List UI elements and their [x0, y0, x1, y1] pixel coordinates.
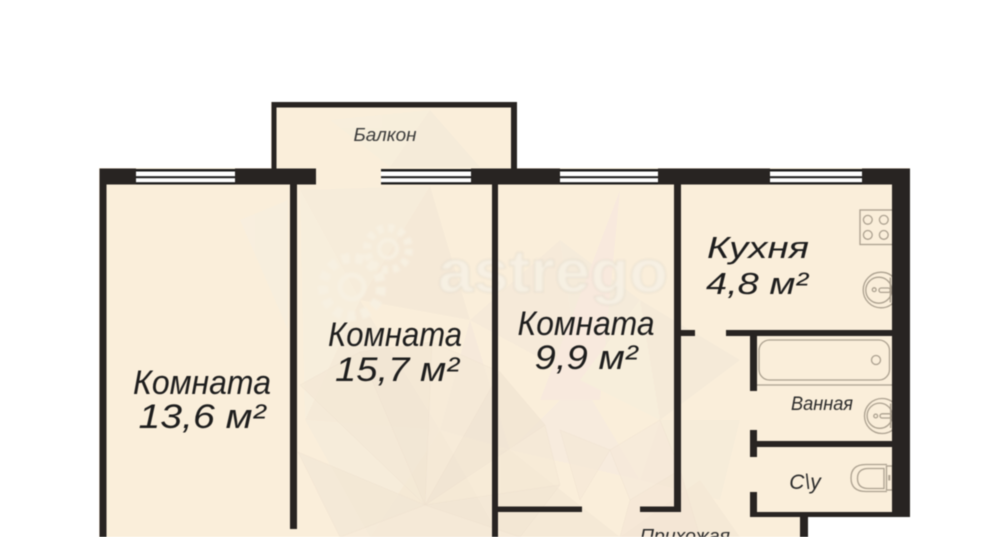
svg-text:Ванная: Ванная	[791, 394, 853, 415]
svg-text:Прихожая: Прихожая	[640, 526, 730, 537]
svg-text:Кухня: Кухня	[707, 230, 809, 265]
svg-text:9,9 м²: 9,9 м²	[535, 339, 640, 377]
svg-text:С\у: С\у	[789, 471, 822, 494]
svg-text:astrego: astrego	[438, 238, 668, 305]
svg-text:Балкон: Балкон	[354, 125, 417, 145]
svg-text:Комната: Комната	[518, 305, 655, 343]
svg-text:15,7 м²: 15,7 м²	[335, 351, 461, 389]
svg-text:Комната: Комната	[328, 316, 462, 354]
svg-text:4,8 м²: 4,8 м²	[706, 266, 810, 301]
svg-text:13,6 м²: 13,6 м²	[139, 398, 268, 436]
svg-text:Комната: Комната	[133, 364, 271, 402]
